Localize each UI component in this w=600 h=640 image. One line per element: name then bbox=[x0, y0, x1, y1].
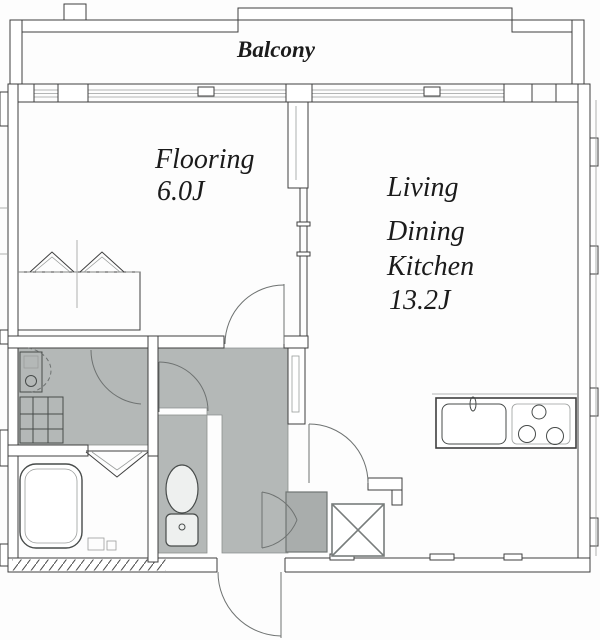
wall-notch bbox=[504, 554, 522, 560]
pipe-shaft-icon bbox=[332, 504, 384, 556]
right-pilaster bbox=[590, 246, 598, 274]
window-mullion bbox=[424, 87, 440, 96]
bath-hall-wall bbox=[148, 456, 158, 562]
bath-drain bbox=[107, 541, 116, 550]
left-wall bbox=[8, 84, 18, 565]
room-divider-wall bbox=[288, 102, 310, 338]
wall-notch bbox=[430, 554, 454, 560]
room-labels: Balcony Flooring 6.0J Living Dining Kitc… bbox=[154, 37, 474, 316]
parapet-middle bbox=[238, 8, 512, 20]
flooring-label: Flooring bbox=[154, 144, 255, 175]
closet-box bbox=[18, 272, 140, 330]
washroom-bath-wall bbox=[8, 445, 88, 456]
ldk-label-dining: Dining bbox=[386, 216, 465, 247]
right-pilaster bbox=[590, 518, 598, 546]
floor-plan-drawing: Balcony Flooring 6.0J Living Dining Kitc… bbox=[0, 0, 600, 640]
parapet-left bbox=[10, 20, 238, 32]
bath-folding-door-icon bbox=[86, 451, 148, 477]
left-pilaster bbox=[0, 92, 8, 126]
ldk-label-kitchen: Kitchen bbox=[386, 251, 474, 282]
closet bbox=[18, 240, 140, 330]
kitchen bbox=[432, 394, 578, 448]
left-pilaster bbox=[0, 330, 8, 344]
toilet-icon bbox=[166, 465, 198, 546]
bathtub-icon bbox=[20, 464, 82, 548]
wall-pier bbox=[286, 84, 312, 102]
flooring-size-label: 6.0J bbox=[157, 176, 206, 207]
right-wall bbox=[578, 84, 590, 570]
bath-counter bbox=[88, 538, 104, 550]
left-pilaster bbox=[0, 544, 8, 566]
parapet-stub bbox=[64, 4, 86, 20]
window-mullion bbox=[198, 87, 214, 96]
hatched-wall-section bbox=[12, 560, 166, 571]
entrance-opening bbox=[217, 556, 285, 574]
flooring-room-door bbox=[225, 284, 284, 344]
right-pilaster bbox=[590, 138, 598, 166]
floor-plan: Balcony Flooring 6.0J Living Dining Kitc… bbox=[0, 0, 600, 640]
hall-ldk-wall bbox=[288, 348, 402, 505]
ldk-label-living: Living bbox=[386, 172, 459, 203]
wall-pier bbox=[58, 84, 88, 102]
entrance-door bbox=[218, 572, 281, 638]
bathroom bbox=[20, 451, 158, 562]
wall-pier bbox=[504, 84, 532, 102]
ldk-size-label: 13.2J bbox=[389, 285, 452, 316]
window-wall bbox=[10, 84, 584, 102]
right-pilaster bbox=[590, 388, 598, 416]
ldk-door bbox=[309, 424, 368, 483]
left-pilaster bbox=[0, 430, 8, 466]
washroom-hall-wall bbox=[148, 336, 158, 456]
entrance-genkan-floor bbox=[286, 492, 327, 552]
partition-tick bbox=[297, 252, 310, 256]
partition-tick bbox=[297, 222, 310, 226]
balcony-label: Balcony bbox=[236, 37, 316, 62]
